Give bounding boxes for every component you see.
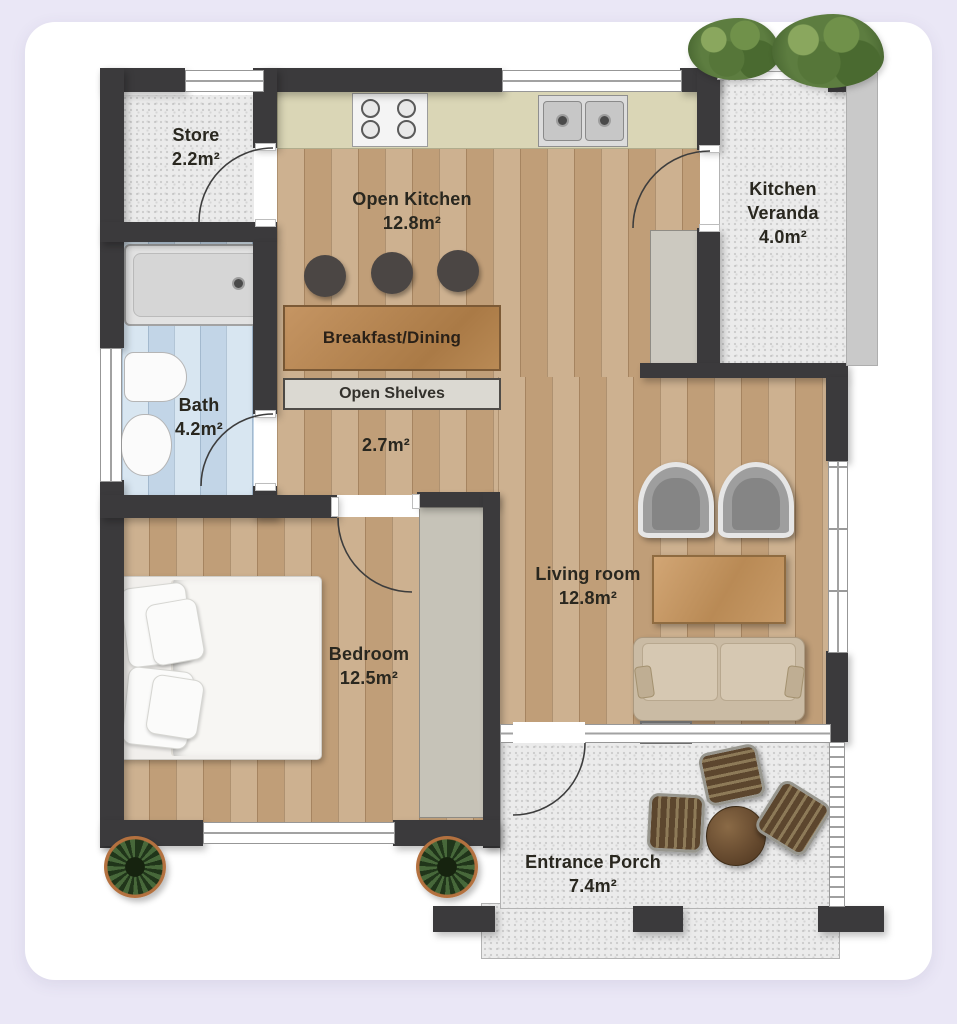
store-window bbox=[185, 70, 264, 92]
breakfast-bar-label: Breakfast/Dining bbox=[285, 307, 499, 369]
wall-segment bbox=[697, 68, 720, 150]
stove-burner bbox=[397, 120, 416, 139]
open-kitchen-label: Open Kitchen 12.8m² bbox=[352, 188, 471, 236]
door-jamb bbox=[699, 224, 720, 232]
kitchen-sink bbox=[538, 95, 628, 147]
wall-segment bbox=[100, 495, 337, 518]
bath-window bbox=[100, 348, 122, 482]
door-jamb bbox=[255, 143, 276, 151]
bathroom-sink bbox=[121, 414, 172, 476]
store-label: Store 2.2m² bbox=[172, 124, 220, 172]
pillow bbox=[144, 597, 206, 667]
sink-bowl bbox=[585, 101, 624, 141]
wall-segment bbox=[262, 68, 502, 92]
bar-stool bbox=[437, 250, 479, 292]
door-jamb bbox=[331, 497, 339, 517]
wall-segment bbox=[100, 68, 124, 348]
bed bbox=[118, 576, 322, 760]
stove-burner bbox=[397, 99, 416, 118]
door-jamb bbox=[699, 145, 720, 153]
potted-plant bbox=[416, 836, 478, 898]
bedroom-label: Bedroom 12.5m² bbox=[329, 643, 409, 691]
stove-burner bbox=[361, 99, 380, 118]
door-jamb bbox=[255, 410, 276, 418]
refrigerator-cabinet bbox=[650, 230, 702, 364]
porch-chair bbox=[647, 793, 706, 854]
porch-pillar bbox=[433, 906, 495, 932]
armchair-seat bbox=[652, 478, 700, 530]
sink-bowl bbox=[543, 101, 582, 141]
sink-drain bbox=[556, 114, 569, 127]
open-shelves-label: Open Shelves bbox=[285, 380, 499, 408]
entrance-porch-label: Entrance Porch 7.4m² bbox=[525, 851, 661, 899]
bath-label: Bath 4.2m² bbox=[175, 394, 223, 442]
coffee-table bbox=[652, 555, 786, 624]
bush-plant bbox=[772, 14, 884, 88]
kitchen-counter bbox=[277, 90, 699, 149]
page-background: Breakfast/Dining Open Shelves bbox=[0, 0, 957, 1024]
shower-drain bbox=[232, 277, 245, 290]
veranda-outer-wall bbox=[846, 72, 878, 366]
potted-plant bbox=[104, 836, 166, 898]
wall-segment bbox=[826, 377, 848, 461]
shower-tray bbox=[124, 244, 271, 326]
wall-segment bbox=[100, 222, 277, 242]
entrance-door-opening bbox=[513, 722, 585, 743]
armchair-seat bbox=[732, 478, 780, 530]
porch-railing bbox=[829, 742, 845, 907]
bar-stool bbox=[371, 252, 413, 294]
porch-table bbox=[706, 806, 766, 866]
open-shelves: Open Shelves bbox=[283, 378, 501, 410]
door-jamb bbox=[412, 494, 420, 509]
sofa bbox=[633, 637, 805, 721]
wall-segment bbox=[253, 242, 277, 414]
sink-drain bbox=[598, 114, 611, 127]
wall-segment bbox=[640, 363, 848, 378]
hallway-area-label: 2.7m² bbox=[362, 434, 410, 458]
kitchen-window bbox=[502, 70, 682, 92]
bush-plant bbox=[688, 18, 780, 80]
door-jamb bbox=[255, 483, 276, 491]
wall-segment bbox=[100, 480, 124, 848]
sofa-pillow bbox=[784, 665, 805, 699]
bedroom-window bbox=[203, 822, 395, 844]
stove-burner bbox=[361, 120, 380, 139]
wall-segment bbox=[697, 228, 720, 364]
pillow bbox=[145, 673, 206, 740]
door-jamb bbox=[255, 219, 276, 227]
bar-stool bbox=[304, 255, 346, 297]
kitchen-veranda-label: Kitchen Veranda 4.0m² bbox=[747, 178, 818, 249]
living-room-label: Living room 12.8m² bbox=[535, 563, 640, 611]
porch-pillar bbox=[818, 906, 884, 932]
porch-pillar bbox=[633, 906, 683, 932]
wardrobe bbox=[419, 507, 485, 818]
breakfast-bar: Breakfast/Dining bbox=[283, 305, 501, 371]
living-room-window bbox=[828, 461, 848, 653]
wall-segment bbox=[483, 492, 500, 848]
gas-stove bbox=[352, 93, 428, 147]
